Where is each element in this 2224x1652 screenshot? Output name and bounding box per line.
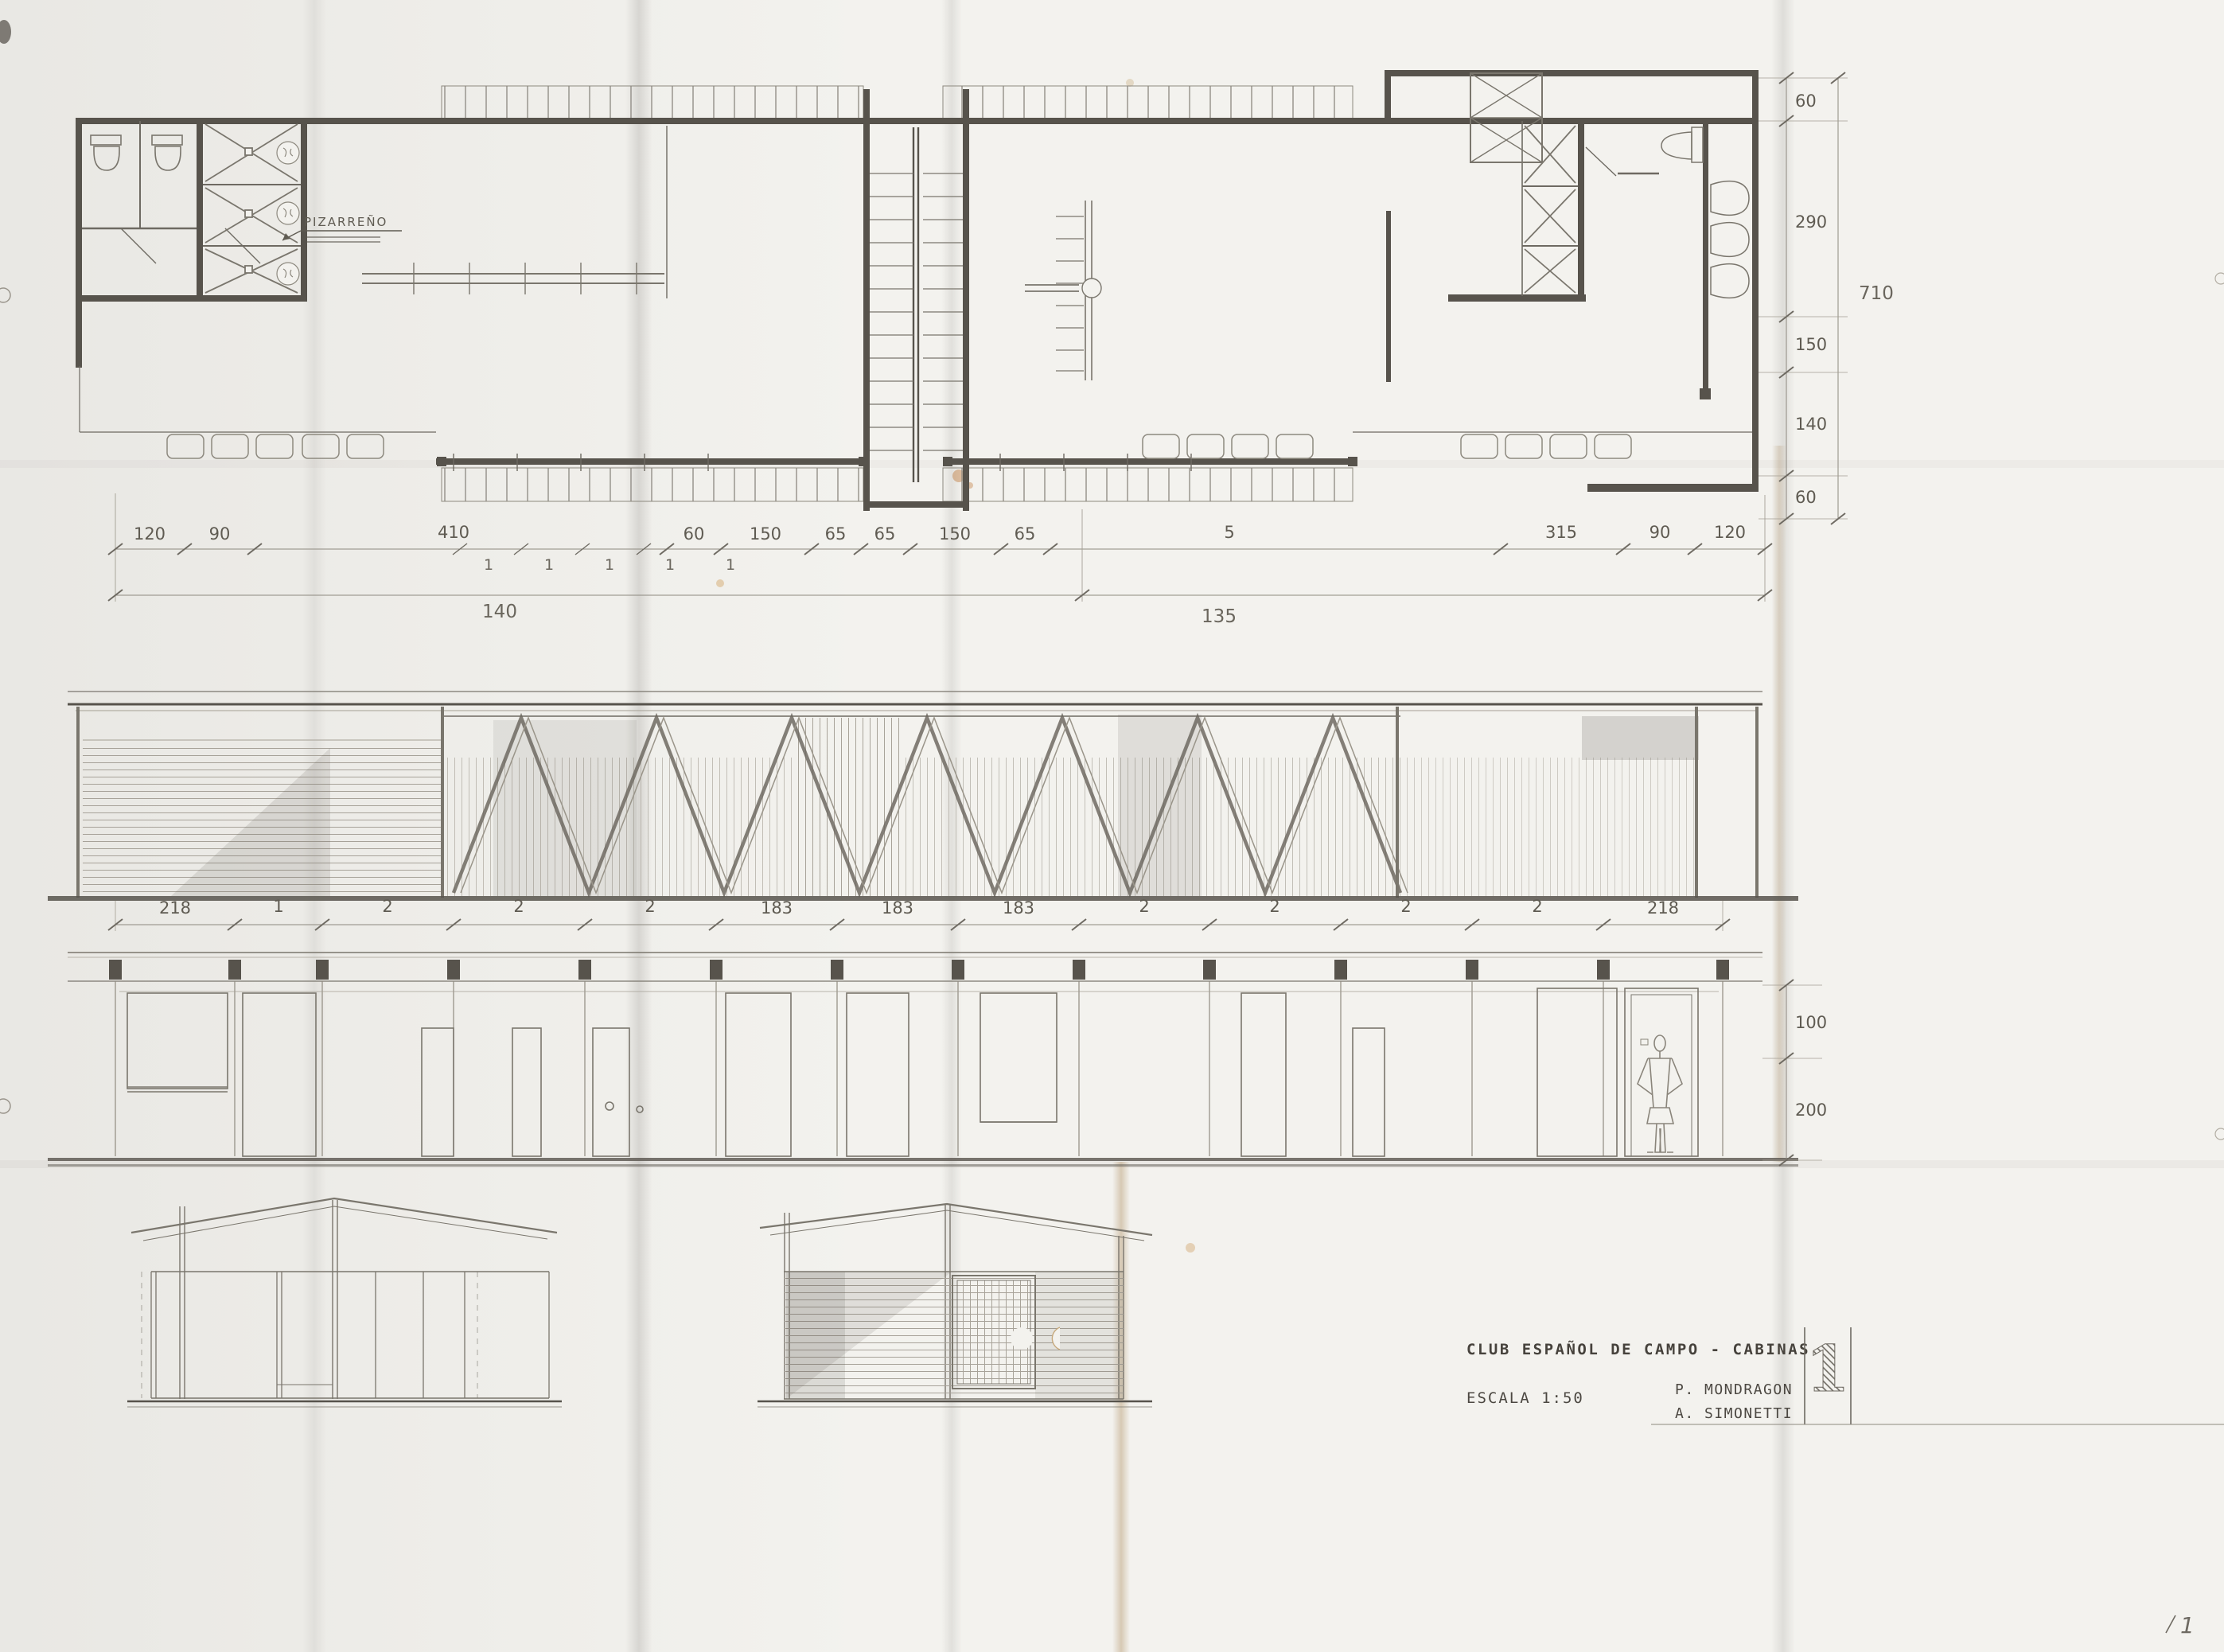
dim-label: 2 xyxy=(1532,897,1542,916)
dim-total-label: 135 xyxy=(1202,606,1237,627)
dim-label: 60 xyxy=(1795,92,1817,111)
dim-label: 60 xyxy=(1795,488,1817,507)
dim-total-label: 140 xyxy=(482,602,517,622)
blueprint-scan: PIZARREÑO xyxy=(0,0,2224,1652)
sheet-number: 1 xyxy=(1805,1331,1850,1406)
boarding-right xyxy=(1400,758,1696,896)
dim-label: 2 xyxy=(513,897,524,916)
dim-label: 65 xyxy=(874,524,896,544)
dim-label: 100 xyxy=(1795,1013,1827,1032)
dim-label: 2 xyxy=(382,897,392,916)
dim-label: 218 xyxy=(159,898,191,918)
dim-label: 65 xyxy=(825,524,847,544)
stain-dot xyxy=(1186,1243,1195,1253)
dim-label: 1 xyxy=(665,556,675,574)
dim-label: 2 xyxy=(1269,897,1279,916)
dim-label: 2 xyxy=(1400,897,1411,916)
author-name: P. MONDRAGON xyxy=(1675,1381,1793,1398)
stain-streak xyxy=(1772,446,1786,1162)
dim-label: 218 xyxy=(1647,898,1679,918)
dim-label: 2 xyxy=(645,897,655,916)
dim-label: 183 xyxy=(761,898,793,918)
shadow xyxy=(493,720,637,896)
corner-number: 1 xyxy=(2180,1612,2195,1638)
boarding-bay xyxy=(796,718,899,896)
author-name: A. SIMONETTI xyxy=(1675,1405,1793,1422)
dim-label: 1 xyxy=(484,556,493,574)
ground-line xyxy=(48,1164,1798,1167)
dim-label: 60 xyxy=(684,524,705,544)
dim-label: 120 xyxy=(134,524,166,544)
dim-label: 5 xyxy=(1224,523,1234,542)
paper-flaw xyxy=(1011,1327,1033,1350)
dim-label: 65 xyxy=(1015,524,1036,544)
shadow xyxy=(1582,716,1699,760)
dim-label: 183 xyxy=(1003,898,1034,918)
stain-dot xyxy=(716,579,724,587)
drawing-title: CLUB ESPAÑOL DE CAMPO - CABINAS xyxy=(1466,1339,1810,1358)
dim-label: 290 xyxy=(1795,212,1827,232)
scale-label: ESCALA 1:50 xyxy=(1466,1389,1584,1407)
dim-label: 410 xyxy=(438,523,469,542)
dim-label: 1 xyxy=(273,897,283,916)
shadow xyxy=(1035,1272,1124,1399)
dim-label: 1 xyxy=(726,556,735,574)
ground-line xyxy=(48,1158,1798,1161)
dim-label: 1 xyxy=(605,556,614,574)
dim-label: 150 xyxy=(1795,335,1827,354)
dim-label: 2 xyxy=(1139,897,1149,916)
dim-label: 150 xyxy=(750,524,781,544)
dim-label: 90 xyxy=(209,524,231,544)
dim-total-label: 710 xyxy=(1859,283,1894,304)
dim-label: 150 xyxy=(939,524,971,544)
dim-label: 183 xyxy=(882,898,913,918)
dim-label: 90 xyxy=(1649,523,1671,542)
dim-label: 120 xyxy=(1714,523,1746,542)
dim-label: 315 xyxy=(1545,523,1577,542)
architectural-drawing: PIZARREÑO xyxy=(0,0,2224,1652)
dim-label: 1 xyxy=(544,556,554,574)
material-note-label: PIZARREÑO xyxy=(304,214,388,229)
dim-label: 140 xyxy=(1795,415,1827,434)
dim-label: 200 xyxy=(1795,1101,1827,1120)
